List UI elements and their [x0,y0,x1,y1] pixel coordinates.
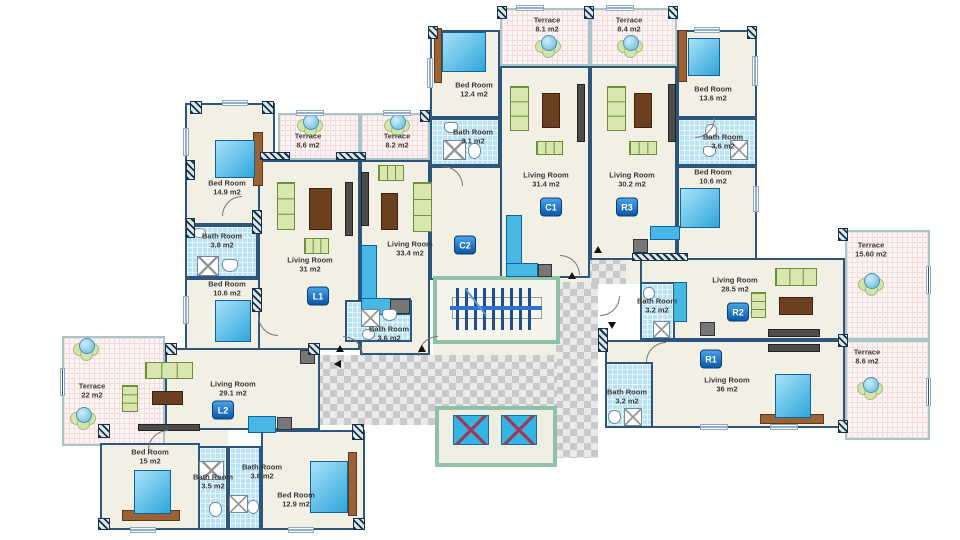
room-hall-c1 [430,166,502,280]
label-bathroom-3-6-right: Bath Room3.6 m2 [703,133,743,152]
terrace-table-icon [858,270,884,296]
toilet-icon [608,410,621,424]
label-terrace-l2: Terrace22 m2 [79,382,106,401]
window [183,128,189,156]
label-living-c1: Living Room31.4 m2 [523,171,568,190]
bed-icon [680,188,720,228]
stove-icon [700,322,715,336]
badge-l1: L1 [307,287,329,306]
entry-arrow-icon [334,360,341,368]
shower-icon [229,495,248,513]
wall-pier [428,26,438,39]
label-terrace-r1: Terrace8.6 m2 [854,348,881,367]
sink-icon [382,309,397,321]
headboard-icon [348,452,357,516]
sofa-icon [536,141,563,155]
wall-pier [632,253,688,261]
window [60,368,65,396]
terrace-table-icon [535,32,561,58]
badge-l2: L2 [212,401,234,420]
tv-icon [345,182,353,236]
bed-icon [215,300,251,342]
shower-icon [624,408,642,426]
kitchen-counter-icon [506,263,538,277]
window [926,378,931,406]
bed-icon [215,140,255,178]
stairs-icon [450,306,542,310]
badge-c2: C2 [454,236,476,255]
badge-r2: R2 [727,303,749,322]
armchair-icon [122,385,138,412]
tv-icon [138,424,200,431]
label-living-l2: Living Room29.1 m2 [210,380,255,399]
label-living-r1: Living Room36 m2 [704,376,749,395]
sofa-icon [510,86,529,131]
headboard-icon [678,30,687,82]
coffee-table-icon [309,188,332,230]
bed-icon [310,461,348,513]
wall-pier [190,101,202,114]
window [288,527,314,533]
sink-icon [222,259,238,272]
window [752,56,758,86]
label-living-l1: Living Room31 m2 [287,256,332,275]
window [770,424,798,430]
sideboard-icon [768,329,820,337]
label-bedroom-10-6-right: Bed Room10.6 m2 [694,168,732,187]
entry-arrow-icon [336,345,344,352]
label-bathroom-3-2-r1: Bath Room3.2 m2 [607,388,647,407]
cabinet-icon [751,292,766,318]
sofa-icon [629,141,657,155]
coffee-table-icon [634,93,652,128]
corridor-checker [556,282,598,458]
wall-pier [838,420,848,433]
stove-icon [633,239,648,253]
wall-pier [186,160,195,180]
sofa-icon [775,268,817,286]
window [926,266,931,294]
stove-icon [538,264,552,277]
wall-pier [353,518,365,530]
wall-pier [668,6,678,19]
entry-arrow-icon [568,272,576,279]
sofa-icon [413,182,432,232]
toilet-icon [247,500,259,514]
coffee-table-icon [152,391,183,405]
elevator-icon [501,415,537,445]
label-terrace-c1: Terrace8.1 m2 [534,16,561,35]
window [700,424,728,430]
label-living-r2: Living Room28.5 m2 [712,276,757,295]
kitchen-counter-icon [248,416,276,433]
label-terrace-r2: Terrace15.60 m2 [855,241,887,260]
coffee-table-icon [381,193,398,230]
toilet-icon [209,502,222,517]
sofa-icon [378,165,404,181]
sofa-icon [304,238,329,254]
entry-arrow-icon [418,345,426,352]
tv-icon [577,84,585,142]
coffee-table-icon [542,93,560,128]
wall-pier [420,110,430,122]
wall-pier [336,152,366,160]
window [222,100,248,106]
window [516,5,544,11]
entry-arrow-icon [594,246,602,253]
label-terrace-l1: Terrace8.6 m2 [295,132,322,151]
shower-icon [197,256,219,276]
window [427,58,433,88]
label-living-c2: Living Room33.4 m2 [387,240,432,259]
label-bedroom-13-6: Bed Room13.6 m2 [694,85,732,104]
elevator-icon [453,415,489,445]
sofa-icon [277,182,295,230]
wall-pier [497,6,507,19]
kitchen-counter-icon [650,226,680,240]
entry-arrow-icon [608,322,616,329]
wall-pier [598,328,608,352]
wall-pier [308,343,320,355]
badge-r3: R3 [616,198,638,217]
wall-pier [165,343,177,355]
kitchen-counter-icon [506,215,522,265]
shower-icon [653,321,670,338]
label-bathroom-3-8-bottom: Bath Room3.8 m2 [242,463,282,482]
label-bedroom-14-9: Bed Room14.9 m2 [208,179,246,198]
label-living-r3: Living Room30.2 m2 [609,171,654,190]
wall-pier [252,288,262,312]
sideboard-icon [768,344,820,352]
label-bathroom-3-2-r2: Bath Room3.2 m2 [637,297,677,316]
tv-icon [668,84,676,142]
label-terrace-r3: Terrace8.4 m2 [616,16,643,35]
coffee-table-icon [779,297,813,315]
terrace-table-icon [617,32,643,58]
bed-icon [442,32,486,72]
sofa-icon [607,86,626,131]
label-bathroom-3-8-left: Bath Room3.8 m2 [202,232,242,251]
plant-icon [73,335,99,361]
plant-icon [70,404,96,430]
window [694,27,720,33]
badge-r1: R1 [700,350,722,369]
bed-icon [134,470,171,514]
wall-pier [352,424,364,440]
window [183,296,189,324]
wall-pier [838,334,848,347]
label-bedroom-15: Bed Room15 m2 [131,448,169,467]
bed-icon [688,38,720,76]
window [753,186,759,212]
label-terrace-c2: Terrace8.2 m2 [384,132,411,151]
window [296,110,324,116]
sofa-icon [145,362,193,379]
tv-icon [361,172,369,226]
window [383,110,411,116]
window [606,5,634,11]
wall-pier [252,210,262,234]
label-bathroom-3-1: Bath Room3.1 m2 [453,128,493,147]
door-arc-icon [600,296,620,316]
label-bedroom-12-9: Bed Room12.9 m2 [277,491,315,510]
wall-pier [747,26,757,39]
stove-icon [277,417,292,430]
wall-pier [262,101,274,114]
floor-plan-canvas: Terrace8.6 m2 Terrace8.2 m2 Terrace8.1 m… [0,0,960,540]
wall-pier [98,518,110,530]
wall-pier [98,424,110,438]
terrace-table-icon [857,374,883,400]
wall-pier [584,6,594,19]
label-bedroom-10-6-left: Bed Room10.6 m2 [208,280,246,299]
label-bathroom-3-5: Bath Room3.5 m2 [193,473,233,492]
label-bedroom-12-4: Bed Room12.4 m2 [455,81,493,100]
badge-c1: C1 [540,198,562,217]
label-bathroom-3-6-center: Bath Room3.6 m2 [369,325,409,344]
window [130,527,156,533]
bed-icon [775,374,811,418]
wall-pier [186,218,195,238]
wall-pier [838,228,848,241]
wall-pier [260,152,290,160]
